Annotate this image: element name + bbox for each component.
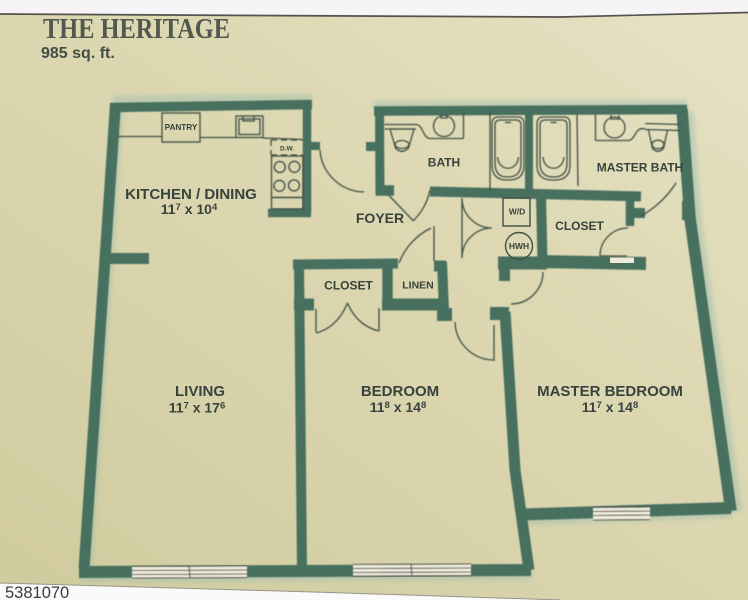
svg-text:HWH: HWH — [509, 241, 529, 251]
svg-text:5381070: 5381070 — [5, 584, 69, 600]
svg-text:CLOSET: CLOSET — [555, 219, 604, 233]
svg-text:D.W.: D.W. — [280, 146, 294, 153]
svg-text:CLOSET: CLOSET — [324, 279, 373, 293]
svg-text:LIVING: LIVING — [175, 383, 225, 400]
svg-text:MASTER BEDROOM: MASTER BEDROOM — [537, 383, 683, 400]
svg-text:117 x 104: 117 x 104 — [161, 201, 218, 217]
svg-text:118 x 148: 118 x 148 — [370, 399, 427, 415]
svg-text:PANTRY: PANTRY — [165, 123, 198, 132]
svg-text:THE HERITAGE: THE HERITAGE — [43, 14, 230, 45]
svg-text:985 sq. ft.: 985 sq. ft. — [41, 45, 115, 62]
svg-text:W/D: W/D — [509, 207, 526, 217]
svg-text:117 x 148: 117 x 148 — [582, 399, 639, 415]
svg-text:FOYER: FOYER — [356, 210, 404, 226]
svg-text:BEDROOM: BEDROOM — [361, 383, 439, 400]
svg-text:LINEN: LINEN — [402, 280, 434, 292]
svg-text:117 x 176: 117 x 176 — [169, 400, 226, 416]
svg-text:MASTER BATH: MASTER BATH — [597, 161, 683, 175]
svg-text:BATH: BATH — [428, 156, 460, 170]
